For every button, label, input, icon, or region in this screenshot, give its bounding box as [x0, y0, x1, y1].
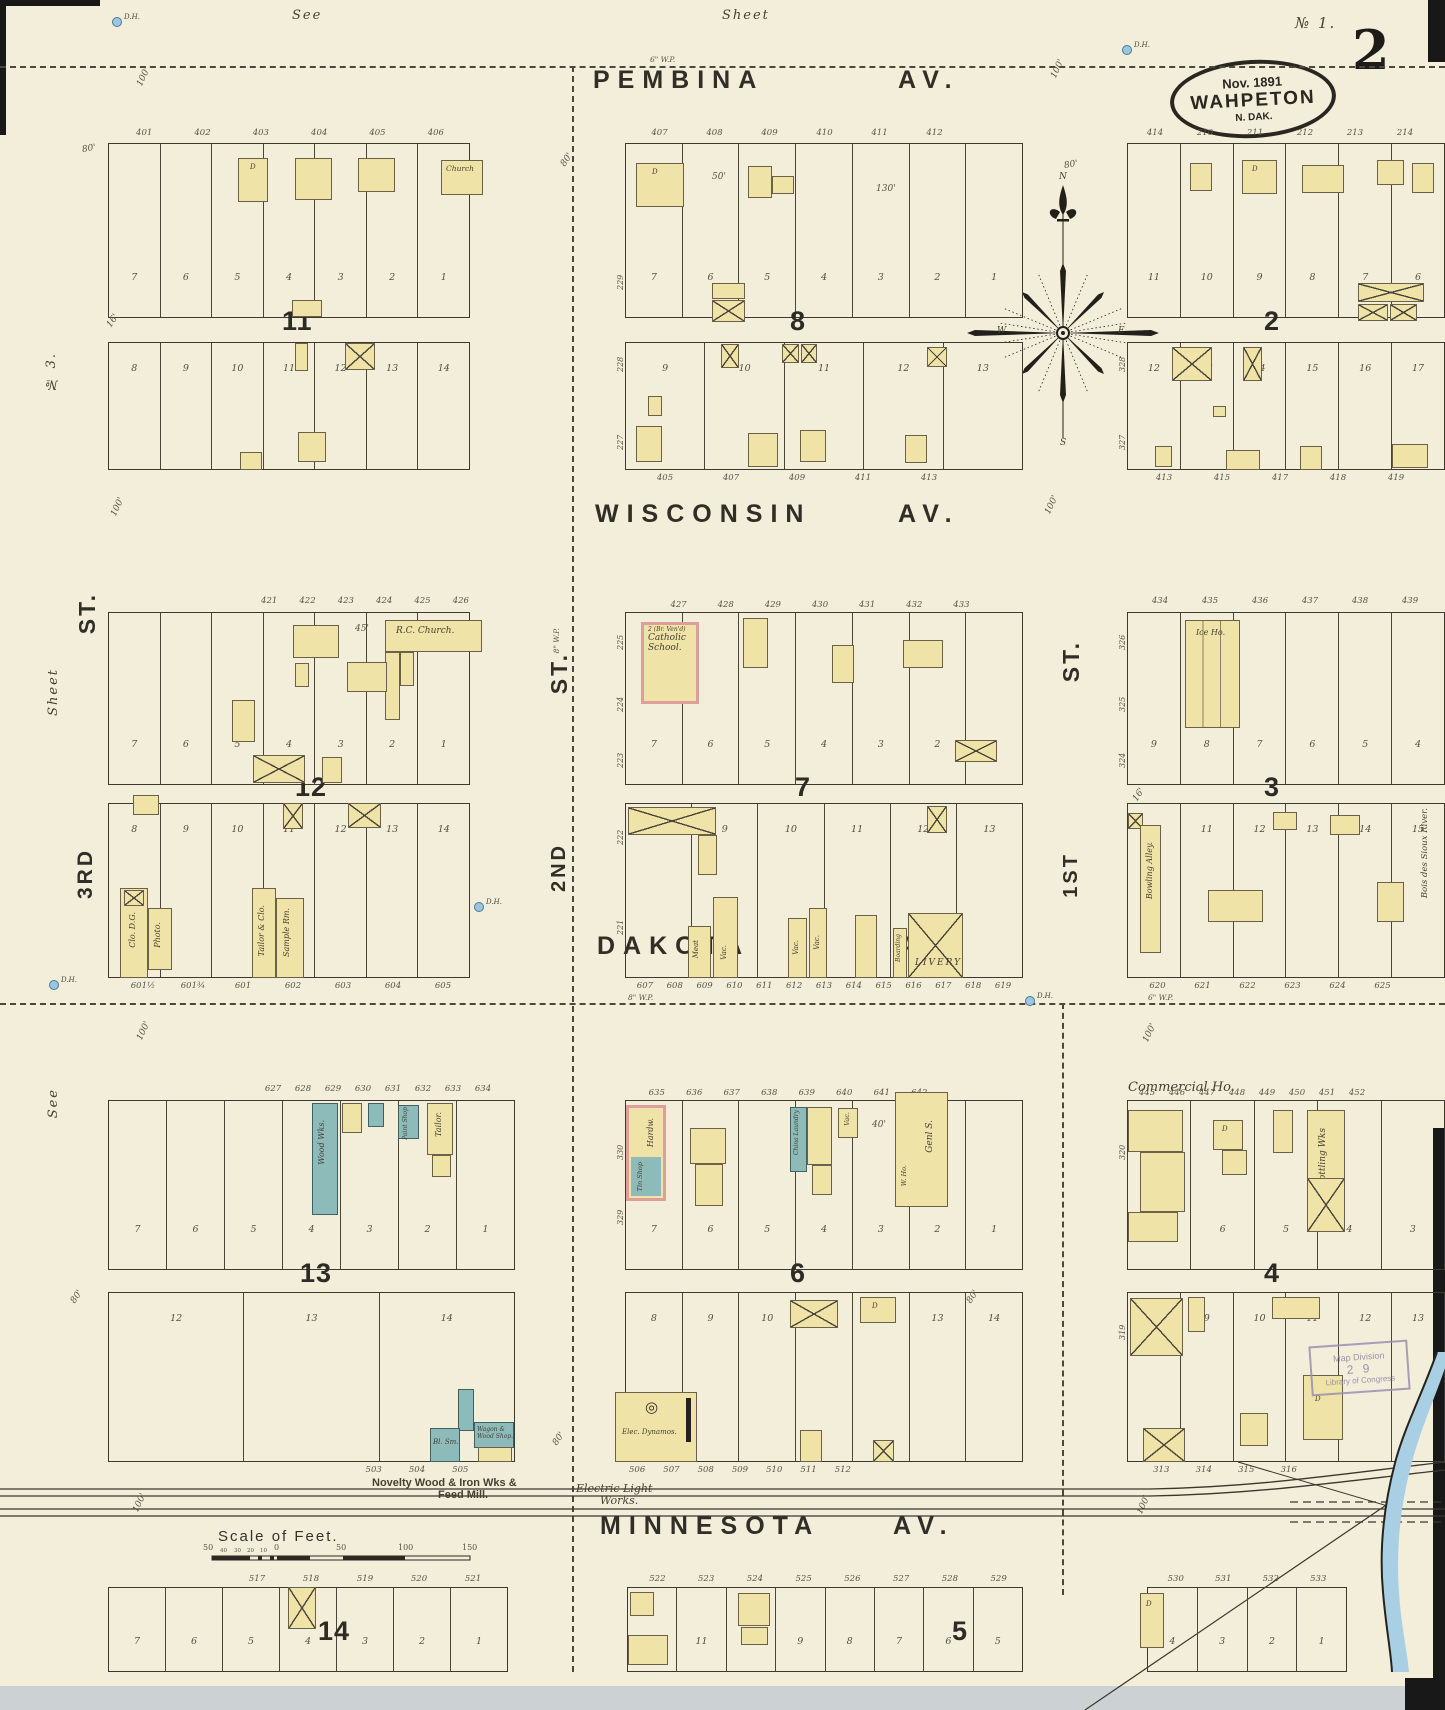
building: [295, 663, 309, 687]
building-stable: [721, 344, 739, 368]
building: [240, 452, 262, 470]
lot-number: 428: [702, 600, 749, 610]
building-stable: [927, 347, 947, 367]
building-stable: [124, 890, 144, 906]
electric-light-works-label-2: Works.: [600, 1494, 638, 1507]
general-store-label: Genl S.: [925, 1120, 935, 1153]
lot-number: 618: [958, 981, 988, 991]
lot-number: 13: [944, 343, 1022, 469]
sheet-join-line-middle: [0, 1003, 1445, 1005]
block7-left-number: 222: [616, 830, 625, 845]
lot-number: 629: [318, 1084, 348, 1094]
block13-number: 13: [300, 1258, 332, 1289]
lot-number: 3: [1198, 1588, 1248, 1671]
novelty-works-label-1: Novelty Wood & Iron Wks &: [372, 1477, 517, 1489]
lot-number: 532: [1247, 1574, 1295, 1584]
lot-number: 522: [633, 1574, 682, 1584]
livery-label: LIVERY: [915, 958, 962, 968]
lot-number: 211: [1230, 128, 1280, 138]
lot-number: 435: [1185, 596, 1235, 606]
block3-upper-lots: 987654: [1128, 613, 1444, 784]
school-note: 2 (Br. Ven'd): [648, 626, 686, 633]
page-number: 2: [1352, 18, 1390, 82]
building: [812, 1165, 832, 1195]
building: [292, 300, 322, 317]
building: [432, 1155, 451, 1177]
lot-number: 528: [926, 1574, 975, 1584]
block7-left-number: 224: [616, 697, 625, 712]
building: [855, 915, 877, 978]
building: [1242, 160, 1277, 194]
building-stable: [1358, 304, 1388, 321]
lot-number: 421: [250, 596, 288, 606]
building: [1392, 444, 1428, 468]
third-street-name: 3RD: [74, 848, 98, 899]
lot-number: 427: [655, 600, 702, 610]
lot-number: 620: [1135, 981, 1180, 991]
building: [385, 652, 400, 720]
lot-number: 639: [788, 1088, 826, 1098]
lot-number: 635: [638, 1088, 676, 1098]
lot-number: 610: [720, 981, 750, 991]
catholic-school-label-2: School.: [648, 643, 682, 653]
lot-number: 3: [853, 144, 910, 317]
dwelling-mark: D: [250, 163, 256, 171]
vacant-label: Vac.: [843, 1112, 851, 1126]
block14-street-numbers: 517518519520521: [230, 1574, 500, 1584]
building: [636, 163, 684, 207]
lot-number: 7: [875, 1588, 924, 1671]
dwelling-mark: D: [872, 1302, 878, 1310]
block3-number: 3: [1264, 772, 1280, 803]
lot-number: 624: [1315, 981, 1360, 991]
margin-note-see-top: See: [292, 8, 322, 23]
lot-number: 1: [457, 1101, 514, 1269]
tailor-label: Tailor.: [434, 1112, 443, 1137]
lot-number: 425: [403, 596, 441, 606]
lot-number: 2: [394, 1588, 451, 1671]
scale-tick: 100: [398, 1543, 413, 1552]
lot-number: 413: [896, 473, 962, 483]
vacant-label: Vac.: [813, 935, 821, 950]
lot-number: 530: [1152, 1574, 1200, 1584]
scale-bar: [212, 1556, 470, 1560]
block6-left-number: 330: [616, 1145, 625, 1160]
building: [738, 1593, 770, 1626]
lot-number: 419: [1367, 473, 1425, 483]
building: [741, 1627, 768, 1645]
vacant-label: Vac.: [792, 940, 800, 955]
lot-number: 452: [1342, 1088, 1372, 1098]
lot-number: 407: [698, 473, 764, 483]
lot-number: 603: [318, 981, 368, 991]
building: [1300, 446, 1322, 470]
lot-number: 5: [739, 1101, 796, 1269]
lot-number: 414: [1130, 128, 1180, 138]
margin-note-sheet-top: Sheet: [722, 8, 770, 23]
block5e-street-numbers: 530531532533: [1152, 1574, 1342, 1584]
building: [1226, 450, 1260, 470]
building: [1377, 882, 1404, 922]
lot-number: 602: [268, 981, 318, 991]
lot-number: 434: [1135, 596, 1185, 606]
building: [1272, 1297, 1320, 1319]
lot-number: 4: [1392, 613, 1444, 784]
block11-upper-lots: 7654321: [109, 144, 469, 317]
pembina-avenue-label: PEMBINA: [593, 66, 764, 95]
block11-upper: 7654321: [108, 143, 470, 318]
block7-street-numbers: 427428429430431432433: [655, 600, 985, 610]
scale-tick: 150: [462, 1543, 477, 1552]
second-street-name: 2ND: [548, 843, 571, 892]
lot-number: 7: [109, 1101, 167, 1269]
third-street-st: ST.: [74, 592, 101, 634]
block8-upper: 7654321: [625, 143, 1023, 318]
lot-number: 526: [828, 1574, 877, 1584]
building: [1140, 1152, 1185, 1212]
building: [628, 1635, 668, 1665]
dim-100: 100': [1141, 1022, 1158, 1044]
block4-street-numbers: 445446447448449450451452: [1132, 1088, 1372, 1098]
dim-40: 40': [872, 1120, 886, 1130]
boarding-label: Boarding: [895, 934, 902, 962]
block4-number: 4: [1264, 1258, 1280, 1289]
lot-number: 621: [1180, 981, 1225, 991]
hydrant-label: D.H.: [1037, 992, 1053, 1000]
hydrant-label: D.H.: [124, 13, 140, 21]
lot-number: 3: [853, 613, 910, 784]
building: [347, 662, 387, 692]
lot-number: 533: [1295, 1574, 1343, 1584]
block5-street-numbers: 522523524525526527528529: [633, 1574, 1023, 1584]
building: [1377, 160, 1404, 185]
lot-number: 9: [1128, 613, 1181, 784]
lot-number: 405: [348, 128, 406, 138]
lot-number: 408: [687, 128, 742, 138]
building: [232, 700, 255, 742]
building-livery: [908, 913, 963, 978]
wisconsin-avenue-label: WISCONSIN: [595, 500, 811, 529]
building: [698, 835, 717, 875]
lot-number: 9: [776, 1588, 825, 1671]
compass-south: S: [1060, 438, 1066, 448]
block3-bottom-numbers: 620621622623624625: [1135, 981, 1405, 991]
building: [748, 433, 778, 467]
bowling-alley-label: Bowling Alley.: [1145, 842, 1154, 899]
block7-left-number: 225: [616, 635, 625, 650]
lot-number: 404: [290, 128, 348, 138]
lot-number: 418: [1309, 473, 1367, 483]
lot-number: 6: [161, 144, 213, 317]
lot-number: 609: [690, 981, 720, 991]
lot-number: 11: [1128, 144, 1181, 317]
building: [1273, 1110, 1293, 1153]
dim-16: 16': [1131, 786, 1147, 803]
building-stable: [782, 344, 799, 363]
block5e-lots: 4321: [1148, 1588, 1346, 1671]
block8-bottom-numbers: 405407409411413: [632, 473, 962, 483]
lot-number: 451: [1312, 1088, 1342, 1098]
margin-note-sheet-left: Sheet: [46, 668, 61, 716]
lot-number: 5: [1339, 613, 1392, 784]
building: [295, 343, 308, 371]
lot-number: 405: [632, 473, 698, 483]
lot-number: 212: [1280, 128, 1330, 138]
block12-bottom-numbers: 601½601¾601602603604605: [118, 981, 468, 991]
lot-number: 611: [749, 981, 779, 991]
lot-number: 5: [225, 1101, 283, 1269]
lot-number: 409: [742, 128, 797, 138]
lot-number: 423: [327, 596, 365, 606]
building: [807, 1107, 832, 1165]
tin-shop-label: Tin Shop: [636, 1162, 644, 1191]
lot-number: 5: [223, 1588, 280, 1671]
building: [743, 618, 768, 668]
lot-number: 450: [1282, 1088, 1312, 1098]
scale-tick: 50: [203, 1543, 213, 1552]
building-general-store: [895, 1092, 948, 1207]
lot-number: 1: [966, 144, 1022, 317]
warehouse-label: W. Ho.: [900, 1165, 908, 1186]
building-stable: [1172, 347, 1212, 381]
lot-number: 14: [418, 343, 469, 469]
lot-number: 409: [764, 473, 830, 483]
lot-number: 518: [284, 1574, 338, 1584]
block2-bottom-numbers: 413415417418419: [1135, 473, 1425, 483]
scan-edge-top-left: [0, 0, 100, 6]
lot-number: 431: [844, 600, 891, 610]
building: [298, 432, 326, 462]
building: [800, 430, 826, 462]
building: [1190, 163, 1212, 191]
dim-130: 130': [876, 184, 896, 194]
lot-number: 430: [796, 600, 843, 610]
margin-note-see-left: See: [46, 1088, 61, 1118]
lot-number: 524: [731, 1574, 780, 1584]
dwelling-mark: D: [1252, 165, 1258, 173]
scale-tick: 20: [247, 1548, 254, 1554]
first-street-st: ST.: [1058, 640, 1085, 682]
dim-80: 80': [81, 143, 96, 155]
lot-number: 601½: [118, 981, 168, 991]
lot-number: 519: [338, 1574, 392, 1584]
building: [712, 283, 745, 299]
lot-number: 607: [630, 981, 660, 991]
dim-100: 100': [135, 1020, 152, 1042]
lot-number: 1: [1297, 1588, 1346, 1671]
block2-left-number: 327: [1118, 435, 1127, 450]
lot-number: 407: [632, 128, 687, 138]
dim-100: 100': [135, 66, 152, 88]
lot-number: 608: [660, 981, 690, 991]
building-stable: [348, 803, 381, 828]
block4-left-number: 319: [1118, 1325, 1127, 1340]
block3-street-numbers: 434435436437438439: [1135, 596, 1435, 606]
tailor-clothing-label: Tailor & Clo.: [257, 905, 266, 956]
building-stable: [1243, 347, 1262, 381]
building-stable: [253, 755, 305, 783]
sample-room-label: Sample Rm.: [282, 908, 291, 957]
lot-number: 625: [1360, 981, 1405, 991]
lot-number: 11: [677, 1588, 726, 1671]
dim-100: 100': [1043, 494, 1060, 516]
block7-left-number: 223: [616, 753, 625, 768]
building: [1213, 406, 1226, 417]
river: [1382, 1352, 1445, 1672]
building: [905, 435, 927, 463]
lot-number: 616: [899, 981, 929, 991]
lot-number: 4: [796, 613, 853, 784]
lot-number: 445: [1132, 1088, 1162, 1098]
building: [1412, 163, 1434, 193]
lot-number: 4: [796, 144, 853, 317]
hydrant-label: D.H.: [61, 976, 77, 984]
lot-number: 527: [877, 1574, 926, 1584]
building-stable: [628, 807, 716, 835]
lot-number: 449: [1252, 1088, 1282, 1098]
lot-number: 636: [676, 1088, 714, 1098]
block8-number: 8: [790, 306, 806, 337]
lot-number: 1: [966, 1101, 1022, 1269]
lot-number: 628: [288, 1084, 318, 1094]
building-stable: [1307, 1178, 1345, 1232]
building: [293, 625, 339, 658]
lot-number: 631: [378, 1084, 408, 1094]
block7-bottom-numbers: 607608609610611612613614615616617618619: [630, 981, 1018, 991]
block8-left-number: 227: [616, 435, 625, 450]
hydrant-dot: [474, 902, 484, 912]
dim-100: 100': [109, 496, 126, 518]
church-label: Church: [446, 164, 474, 173]
building: [1188, 1297, 1205, 1332]
lot-number: 520: [392, 1574, 446, 1584]
block13-street-numbers: 627628629630631632633634: [258, 1084, 498, 1094]
lot-number: 447: [1192, 1088, 1222, 1098]
dim-80: 80': [69, 1288, 85, 1305]
block4-left-number: 320: [1118, 1145, 1127, 1160]
lot-number: 411: [852, 128, 907, 138]
hydrant-dot: [1025, 996, 1035, 1006]
water-pipe-note: 6" W.P.: [1148, 993, 1173, 1002]
dwelling-mark: D: [652, 168, 658, 176]
building: [636, 426, 662, 462]
hydrant-label: D.H.: [486, 898, 502, 906]
lot-number: 12: [315, 804, 367, 977]
building-stable: [712, 300, 745, 322]
building: [772, 176, 794, 194]
lot-number: 446: [1162, 1088, 1192, 1098]
lot-number: 437: [1285, 596, 1335, 606]
building: [1128, 1212, 1178, 1242]
block7-number: 7: [795, 772, 811, 803]
sheet-reference-no1: № 1.: [1295, 14, 1336, 32]
building: [358, 158, 395, 192]
lot-number: 415: [1193, 473, 1251, 483]
lot-number: 7: [109, 144, 161, 317]
block2-left-number: 328: [1118, 357, 1127, 372]
dim-50: 50': [712, 172, 726, 182]
block5-number: 5: [952, 1616, 968, 1647]
lot-number: 1: [451, 1588, 507, 1671]
novelty-works-label-2: Feed Mill.: [438, 1489, 488, 1501]
lot-number: 613: [809, 981, 839, 991]
building: [368, 1103, 384, 1127]
building: [713, 897, 738, 978]
building-stable: [1358, 283, 1424, 302]
compass-north: N: [1059, 172, 1067, 182]
lot-number: 403: [232, 128, 290, 138]
dim-45: 45': [355, 624, 369, 634]
building: [322, 757, 342, 783]
block5-east: 4321: [1147, 1587, 1347, 1672]
catholic-school-label-1: Catholic: [648, 633, 686, 643]
scale-tick: 10: [260, 1548, 267, 1554]
lot-number: 529: [974, 1574, 1023, 1584]
lot-number: 433: [938, 600, 985, 610]
block6-street-numbers: 635636637638639640641642: [638, 1088, 938, 1098]
water-pipe-note: 8" W.P.: [628, 993, 653, 1002]
second-street-st: ST.: [546, 652, 573, 694]
lot-number: 614: [839, 981, 869, 991]
lot-number: 410: [797, 128, 852, 138]
scale-tick: 30: [234, 1548, 241, 1554]
lot-number: 6: [1286, 613, 1339, 784]
lot-number: 401: [115, 128, 173, 138]
compass-west: W: [997, 326, 1006, 336]
lot-number: 417: [1251, 473, 1309, 483]
block8-upper-lots: 7654321: [626, 144, 1022, 317]
block2-number: 2: [1264, 306, 1280, 337]
lot-number: 615: [869, 981, 899, 991]
lot-number: 429: [749, 600, 796, 610]
lot-number: 7: [1234, 613, 1287, 784]
building-commercial-house: [1128, 1110, 1183, 1152]
lot-number: 2: [910, 144, 967, 317]
lot-number: 612: [779, 981, 809, 991]
pembina-av-abbr: AV.: [898, 66, 960, 95]
building-stable: [927, 806, 947, 833]
building: [748, 166, 772, 198]
building: [342, 1103, 362, 1133]
building-stable: [1390, 304, 1417, 321]
block3-left-number: 324: [1118, 753, 1127, 768]
lot-number: 638: [751, 1088, 789, 1098]
lot-number: 16: [1339, 343, 1392, 469]
lot-number: 210: [1180, 128, 1230, 138]
building-stable: [288, 1587, 316, 1629]
lot-number: 637: [713, 1088, 751, 1098]
building-stable: [345, 343, 375, 370]
lot-number: 8: [109, 343, 161, 469]
meat-label: Meat: [692, 940, 700, 958]
building: [1302, 165, 1344, 193]
building: [400, 652, 414, 686]
lot-number: 9: [161, 343, 213, 469]
building: [648, 396, 662, 416]
lot-number: 2: [1248, 1588, 1298, 1671]
china-laundry-label: China Laundry: [793, 1110, 800, 1155]
ice-house-label: Ice Ho.: [1196, 628, 1225, 637]
building-stable: [790, 1300, 838, 1328]
lot-number: 412: [907, 128, 962, 138]
lot-number: 619: [988, 981, 1018, 991]
wisconsin-av-abbr: AV.: [898, 500, 960, 529]
water-pipe-note: 8" W.P.: [552, 628, 561, 653]
first-street-name: 1ST: [1060, 852, 1083, 898]
hydrant-dot: [49, 980, 59, 990]
block7-left-number: 221: [616, 920, 625, 935]
lot-number: 406: [407, 128, 465, 138]
